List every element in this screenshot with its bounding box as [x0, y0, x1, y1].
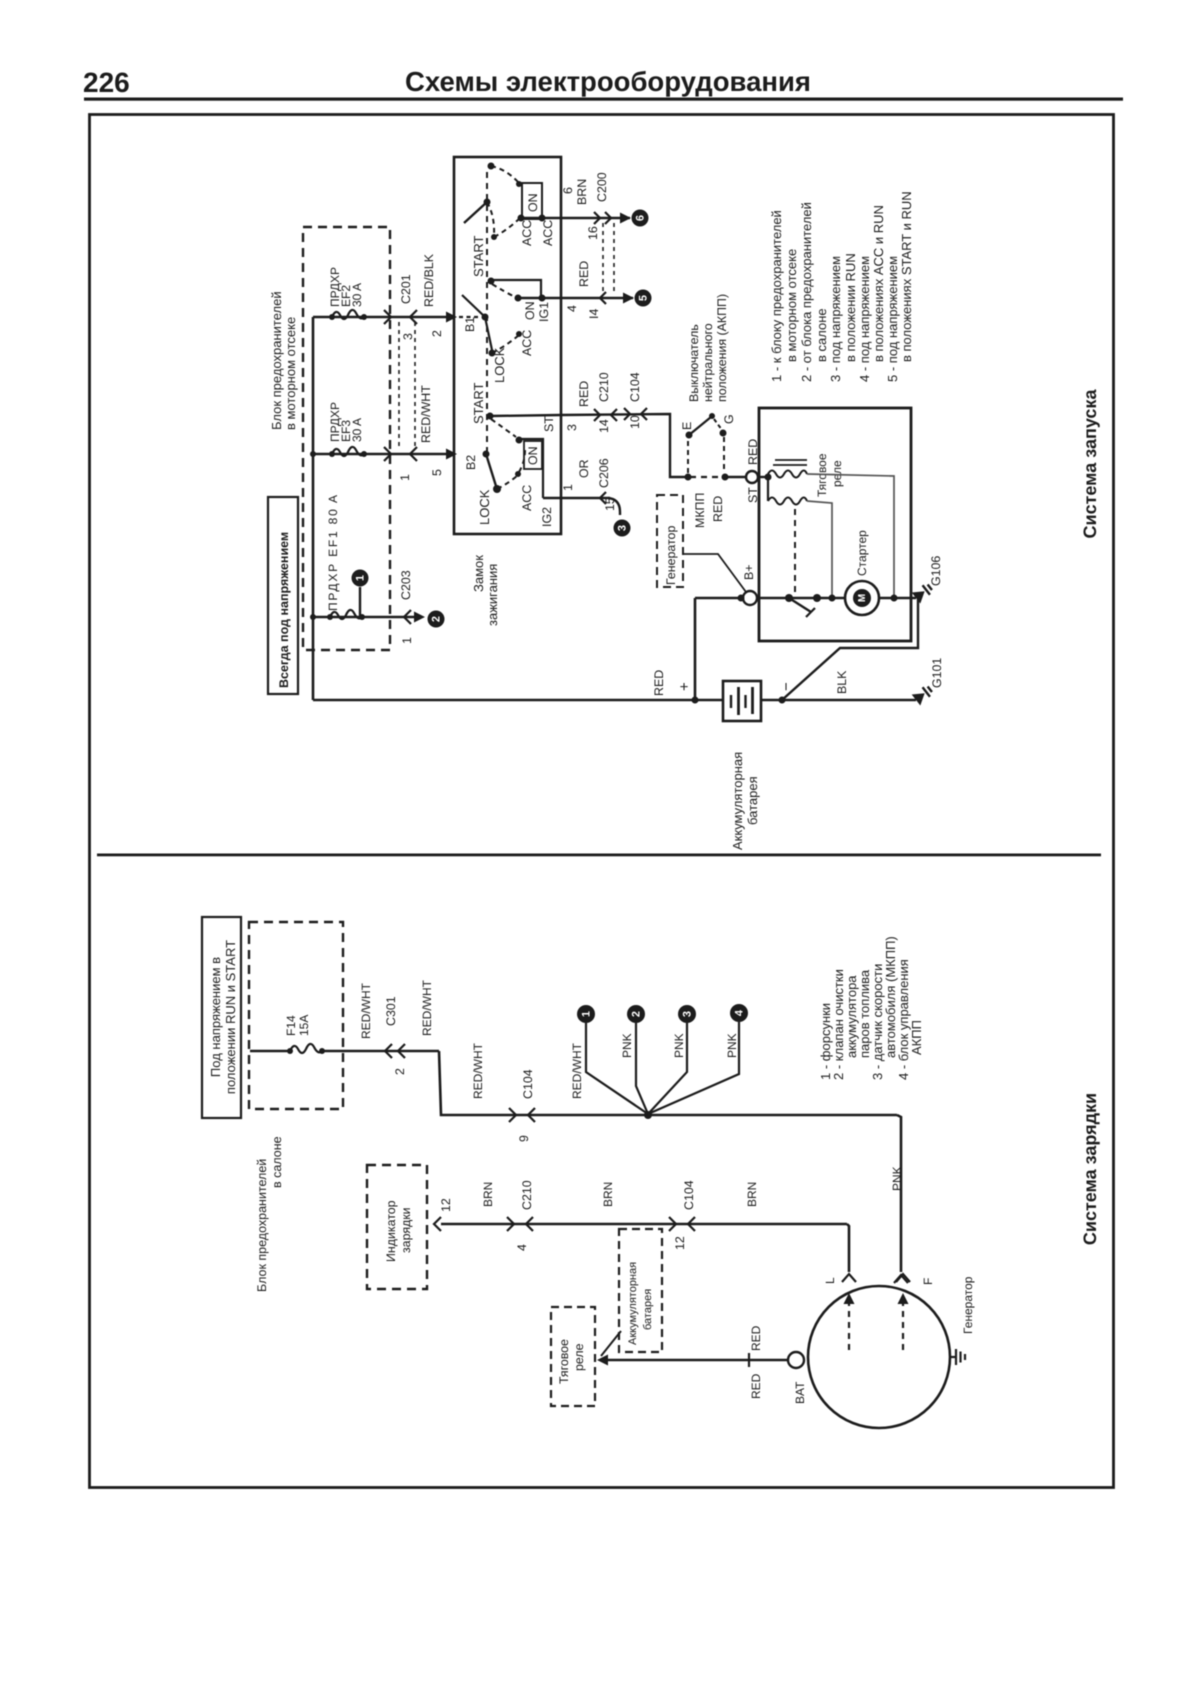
svg-text:в моторном отсеке: в моторном отсеке — [784, 249, 799, 362]
svg-text:Тяговое: Тяговое — [557, 1339, 571, 1384]
svg-text:RED/WHT: RED/WHT — [359, 982, 373, 1039]
svg-text:ACC: ACC — [520, 330, 534, 356]
svg-text:G101: G101 — [930, 658, 944, 688]
svg-text:в положениях ACC и RUN: в положениях ACC и RUN — [871, 205, 886, 362]
svg-text:реле: реле — [572, 1343, 586, 1371]
svg-text:2 - от блока предохранителей: 2 - от блока предохранителей — [799, 202, 814, 382]
svg-text:3 - под напряжением: 3 - под напряжением — [828, 256, 843, 382]
svg-text:реле: реле — [830, 460, 844, 487]
svg-text:Блок предохранителей: Блок предохранителей — [269, 291, 284, 430]
svg-text:C301: C301 — [384, 996, 398, 1026]
svg-text:BRN: BRN — [745, 1182, 759, 1207]
svg-text:зарядки: зарядки — [399, 1207, 413, 1253]
svg-text:C104: C104 — [628, 372, 642, 402]
svg-text:OR: OR — [577, 459, 591, 478]
svg-text:Аккумуляторная: Аккумуляторная — [730, 752, 745, 850]
svg-text:Всегда под напряжением: Всегда под напряжением — [277, 532, 291, 688]
svg-text:PNK: PNK — [890, 1166, 904, 1191]
svg-text:ACC: ACC — [520, 220, 534, 246]
svg-text:4 - под напряжением: 4 - под напряжением — [857, 256, 872, 382]
svg-text:Замок: Замок — [471, 555, 486, 592]
svg-text:I4: I4 — [587, 309, 601, 319]
svg-text:4: 4 — [565, 305, 579, 312]
svg-text:батарея: батарея — [745, 776, 760, 825]
svg-text:C203: C203 — [399, 570, 413, 600]
svg-text:16: 16 — [586, 226, 600, 240]
svg-text:C210: C210 — [520, 1180, 534, 1210]
svg-text:6: 6 — [634, 215, 646, 221]
svg-text:ON: ON — [526, 193, 540, 212]
svg-text:30 A: 30 A — [350, 418, 364, 442]
svg-text:START: START — [471, 383, 486, 424]
svg-text:2: 2 — [630, 1011, 642, 1017]
svg-text:2: 2 — [430, 616, 442, 622]
svg-text:B1: B1 — [463, 317, 477, 332]
svg-text:1: 1 — [561, 484, 575, 491]
svg-text:2: 2 — [430, 330, 444, 337]
svg-text:5 - под напряжением: 5 - под напряжением — [885, 256, 900, 382]
svg-text:Блок предохранителей: Блок предохранителей — [255, 1159, 269, 1292]
svg-text:PNK: PNK — [620, 1033, 634, 1058]
svg-text:Аккумуляторная: Аккумуляторная — [627, 1262, 639, 1345]
svg-text:1: 1 — [398, 474, 412, 481]
svg-text:12: 12 — [673, 1236, 687, 1250]
svg-text:9: 9 — [517, 1135, 531, 1142]
svg-text:RED: RED — [749, 1325, 763, 1351]
svg-text:226: 226 — [83, 67, 130, 98]
svg-text:M: M — [857, 594, 868, 602]
svg-text:ПРДХР EF1 80 A: ПРДХР EF1 80 A — [326, 493, 340, 611]
svg-text:BLK: BLK — [835, 670, 849, 694]
svg-text:G106: G106 — [929, 556, 943, 586]
svg-text:RED/WHT: RED/WHT — [570, 1042, 584, 1099]
svg-text:Система зарядки: Система зарядки — [1080, 1093, 1100, 1245]
svg-text:1: 1 — [354, 575, 366, 581]
svg-text:RED/BLK: RED/BLK — [422, 253, 436, 307]
svg-text:1: 1 — [580, 1011, 592, 1017]
svg-text:В+: В+ — [742, 564, 756, 580]
svg-text:Генератор: Генератор — [961, 1276, 975, 1334]
svg-text:BAT: BAT — [793, 1381, 807, 1404]
svg-text:3: 3 — [681, 1011, 693, 1017]
svg-text:G: G — [722, 414, 736, 424]
svg-text:4: 4 — [515, 1244, 529, 1251]
svg-text:RED/WHT: RED/WHT — [420, 979, 434, 1036]
svg-text:RED/WHT: RED/WHT — [419, 385, 433, 443]
svg-text:Под напряжением в: Под напряжением в — [208, 957, 223, 1077]
svg-text:START: START — [471, 236, 486, 277]
svg-text:LOCK: LOCK — [492, 347, 507, 383]
svg-text:BRN: BRN — [481, 1182, 495, 1207]
svg-text:10: 10 — [628, 415, 642, 429]
svg-text:PNK: PNK — [672, 1033, 686, 1058]
svg-text:+: + — [676, 682, 693, 691]
svg-text:C206: C206 — [597, 458, 611, 488]
svg-text:C210: C210 — [597, 372, 611, 402]
svg-text:в моторном отсеке: в моторном отсеке — [283, 317, 298, 430]
svg-text:PNK: PNK — [725, 1033, 739, 1058]
svg-text:B2: B2 — [464, 455, 478, 470]
svg-text:Система запуска: Система запуска — [1080, 389, 1100, 539]
svg-text:в положении RUN: в положении RUN — [843, 253, 858, 362]
svg-text:положения (АКПП): положения (АКПП) — [715, 294, 729, 402]
svg-text:Схемы электрооборудования: Схемы электрооборудования — [405, 66, 811, 97]
svg-text:E: E — [680, 422, 694, 430]
svg-text:RED: RED — [711, 496, 725, 522]
svg-text:30 A: 30 A — [350, 283, 364, 307]
svg-text:F: F — [921, 1278, 935, 1285]
svg-text:C104: C104 — [682, 1180, 696, 1210]
svg-text:BRN: BRN — [575, 179, 589, 205]
svg-text:нейтрального: нейтрального — [701, 323, 715, 402]
svg-text:зажигания: зажигания — [485, 564, 500, 626]
svg-text:3: 3 — [401, 333, 415, 340]
svg-text:14: 14 — [597, 419, 611, 433]
svg-text:в положениях START и RUN: в положениях START и RUN — [899, 191, 914, 362]
svg-text:C201: C201 — [399, 274, 413, 304]
svg-text:ST: ST — [542, 416, 556, 432]
svg-text:LOCK: LOCK — [477, 489, 492, 525]
svg-text:15: 15 — [603, 497, 617, 511]
svg-text:RED: RED — [577, 381, 591, 407]
svg-text:15A: 15A — [297, 1015, 311, 1036]
svg-text:RED: RED — [577, 261, 591, 287]
svg-text:5: 5 — [637, 295, 649, 301]
svg-text:4: 4 — [733, 1009, 745, 1016]
svg-text:Индикатор: Индикатор — [384, 1200, 398, 1262]
svg-text:3: 3 — [565, 424, 579, 431]
svg-text:RED/WHT: RED/WHT — [471, 1042, 485, 1099]
svg-text:RED: RED — [749, 1373, 763, 1399]
svg-text:1: 1 — [400, 637, 414, 644]
svg-text:5: 5 — [430, 469, 444, 476]
svg-text:ACC: ACC — [541, 220, 555, 246]
svg-text:ON: ON — [523, 301, 537, 320]
svg-text:1 - к блоку предохранителей: 1 - к блоку предохранителей — [769, 210, 784, 382]
svg-text:МКПП: МКПП — [693, 493, 707, 528]
svg-text:6: 6 — [561, 187, 575, 194]
svg-text:3: 3 — [616, 525, 628, 531]
svg-text:4 - блок управления: 4 - блок управления — [896, 959, 911, 1080]
svg-text:положении RUN и START: положении RUN и START — [223, 940, 238, 1094]
svg-text:12: 12 — [439, 1198, 453, 1212]
svg-text:Генератор: Генератор — [664, 526, 678, 585]
svg-text:ACC: ACC — [520, 485, 534, 511]
svg-text:в салоне: в салоне — [814, 308, 829, 362]
svg-text:F14: F14 — [284, 1015, 298, 1036]
svg-text:IG2: IG2 — [540, 507, 554, 527]
svg-text:Выключатель: Выключатель — [687, 324, 701, 402]
svg-text:АКПП: АКПП — [909, 1020, 924, 1055]
svg-text:BRN: BRN — [601, 1182, 615, 1207]
svg-text:C104: C104 — [521, 1069, 535, 1099]
svg-text:Стартер: Стартер — [855, 530, 869, 576]
svg-text:IG1: IG1 — [537, 302, 551, 322]
svg-text:RED: RED — [652, 670, 666, 696]
svg-text:C200: C200 — [595, 172, 609, 202]
svg-text:L: L — [823, 1277, 837, 1284]
svg-text:2: 2 — [393, 1068, 407, 1075]
svg-text:в салоне: в салоне — [270, 1136, 284, 1188]
svg-text:ON: ON — [526, 446, 540, 465]
svg-text:батарея: батарея — [642, 1289, 654, 1330]
